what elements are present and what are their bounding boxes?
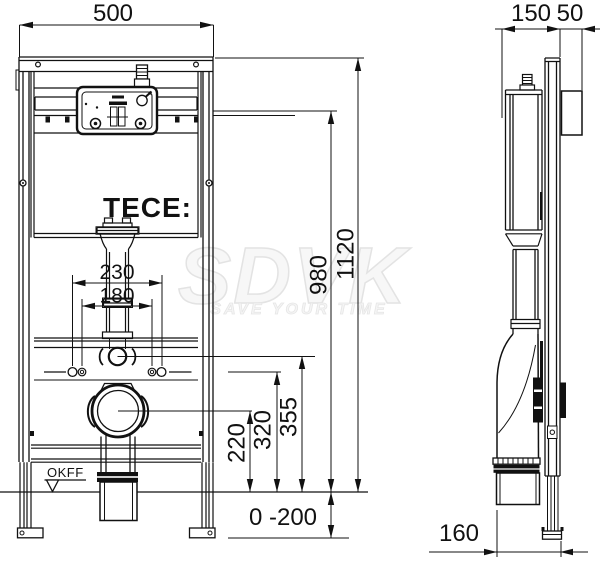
dim-label-foot-range: 0 -200 <box>249 504 317 531</box>
water-connection-front <box>135 65 150 87</box>
dim-foot-range: 0 -200 <box>228 492 349 538</box>
level-triangle-icon <box>47 480 59 492</box>
side-rail <box>542 58 564 539</box>
top-screw-right <box>194 62 199 67</box>
foot-left <box>18 528 44 538</box>
dim-label-180: 180 <box>99 285 134 308</box>
dim-label-50: 50 <box>557 0 584 27</box>
side-foot <box>543 531 562 539</box>
dim-label-1120: 1120 <box>332 228 359 280</box>
floor-label: OKFF <box>47 465 84 480</box>
dim-label-355: 355 <box>275 397 302 437</box>
brand-logo: TECE: <box>103 192 192 223</box>
pipe-clamp <box>533 378 543 423</box>
middle-rail <box>34 338 315 365</box>
watermark-slogan: SAVE YOUR TIME <box>210 301 387 318</box>
fixing-bolts <box>34 368 198 380</box>
dim-width-500: 500 <box>20 0 214 57</box>
flush-valve-box <box>77 87 157 134</box>
floor-level-marker: OKFF <box>45 465 87 492</box>
dim-height-355: 355 <box>275 356 305 492</box>
rail-adjuster <box>548 426 558 439</box>
outlet-socket <box>497 473 540 505</box>
top-screw-left <box>36 62 41 67</box>
dim-label-500: 500 <box>93 0 133 27</box>
elbow-side <box>493 334 566 505</box>
drawing-sheet: SDVK SAVE YOUR TIME <box>0 0 600 563</box>
foot-right <box>190 528 216 538</box>
feet <box>18 528 216 538</box>
dim-label-160: 160 <box>439 520 479 547</box>
side-view <box>493 58 582 539</box>
flush-pipe-side <box>511 250 540 335</box>
hanger-tab <box>16 70 19 90</box>
tece-installation-drawing: SDVK SAVE YOUR TIME <box>0 0 600 563</box>
dim-label-320: 320 <box>249 410 276 450</box>
dim-label-220: 220 <box>223 423 250 463</box>
wall-bracket <box>562 91 583 135</box>
outlet-stub <box>97 472 138 521</box>
dim-depth-150-50: 150 50 <box>495 0 600 118</box>
dim-label-980: 980 <box>305 255 332 295</box>
dim-label-150: 150 <box>511 0 551 27</box>
dim-outlet-160: 160 <box>429 510 588 557</box>
cistern-side <box>506 75 543 250</box>
dim-label-230: 230 <box>99 261 134 284</box>
